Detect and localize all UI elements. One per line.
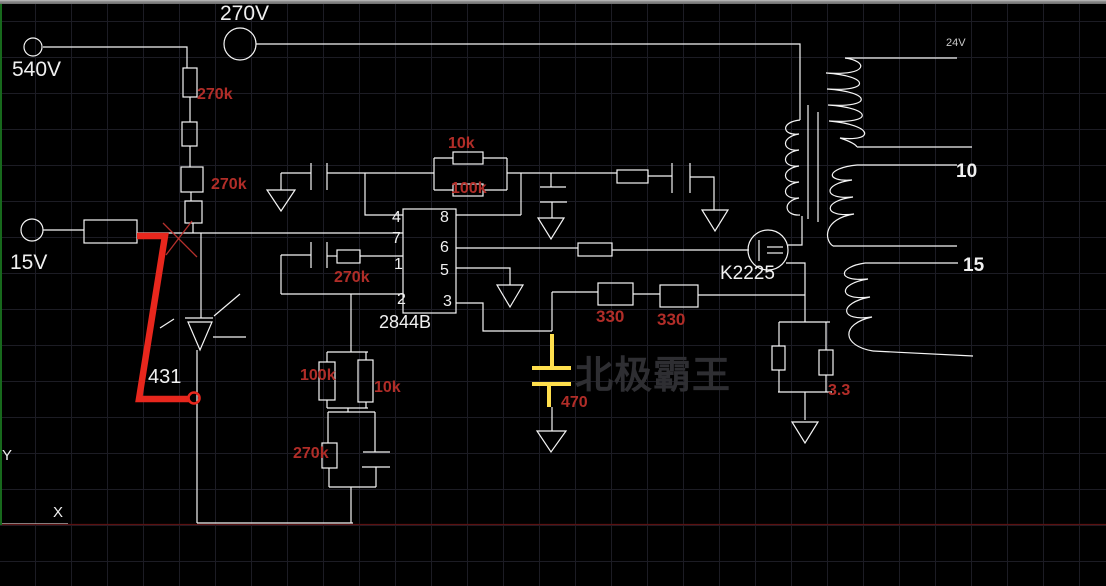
label-270v: 270V: [220, 3, 269, 25]
watermark-text: 北极霸王: [575, 344, 731, 399]
value-r-fb-bottom: 100k: [451, 181, 487, 198]
ucs-green-axis-line: [0, 4, 2, 525]
label-431: 431: [148, 367, 181, 388]
ic-pin-8: 8: [440, 210, 449, 226]
ic-pin-6: 6: [440, 240, 449, 256]
value-r-gate-a: 330: [596, 308, 624, 326]
transformer-secondary-coil-24v: [826, 58, 972, 147]
label-winding-10: 10: [956, 162, 977, 182]
mosfet-k2225-symbol: [612, 216, 805, 322]
cad-canvas[interactable]: 540V 270V 15V 431 2844B K2225 24V 10 15 …: [0, 0, 1106, 586]
value-r-div-right: 10k: [374, 380, 401, 397]
ucs-y-label: Y: [2, 448, 12, 464]
value-r-chain-upper: 270k: [197, 87, 233, 104]
ic-pin-1: 1: [394, 257, 403, 273]
ground-symbol: [497, 285, 523, 307]
annotation-node-circle: [189, 393, 200, 404]
vcc-rc-network: [617, 163, 728, 231]
label-540v: 540V: [12, 59, 61, 81]
terminal-15v-symbol: [21, 219, 137, 243]
ic-pin-2: 2: [397, 292, 406, 308]
label-k2225: K2225: [720, 264, 775, 284]
transformer-core: [808, 105, 818, 222]
value-r-fb-top: 10k: [448, 136, 475, 153]
ground-symbol: [267, 190, 295, 211]
ucs-x-label: X: [53, 505, 63, 521]
ic-pin-7: 7: [392, 231, 401, 247]
ic-pin-4: 4: [392, 210, 401, 226]
ground-symbol: [537, 431, 566, 452]
value-r-gate-b: 330: [657, 311, 685, 329]
value-r-osc: 270k: [334, 270, 370, 287]
annotation-x-mark: [163, 221, 197, 257]
ic-pin-3: 3: [443, 294, 452, 310]
decoupling-cap: [538, 173, 567, 239]
terminal-270v-symbol: [224, 28, 800, 120]
transformer-secondary-coil-15: [844, 263, 973, 356]
transformer-secondary-coil-10: [828, 165, 957, 246]
value-r-chain-lower: 270k: [211, 177, 247, 194]
ground-symbol: [702, 210, 728, 231]
ic-pin-5: 5: [440, 263, 449, 279]
value-r-div-left: 100k: [300, 368, 336, 385]
transformer-primary-coil: [785, 120, 800, 215]
ground-symbol: [792, 422, 818, 443]
label-winding-15: 15: [963, 256, 984, 276]
vref-cap-network: [267, 163, 434, 215]
window-edge-bar: [0, 0, 1106, 4]
sense-network-3r3: [772, 322, 833, 443]
ground-symbol: [538, 218, 564, 239]
gate-drive-net: [456, 243, 612, 256]
schematic-drawing: [0, 0, 1106, 586]
low-rc-net: [322, 412, 390, 523]
label-24v: 24V: [946, 38, 966, 50]
label-15v: 15V: [10, 252, 47, 274]
value-r-sense: 3.3: [828, 383, 850, 400]
oscillator-rc-net: [281, 242, 403, 352]
label-2844b: 2844B: [379, 313, 431, 332]
value-r-low: 270k: [293, 446, 329, 463]
pin5-ground-net: [456, 268, 523, 307]
